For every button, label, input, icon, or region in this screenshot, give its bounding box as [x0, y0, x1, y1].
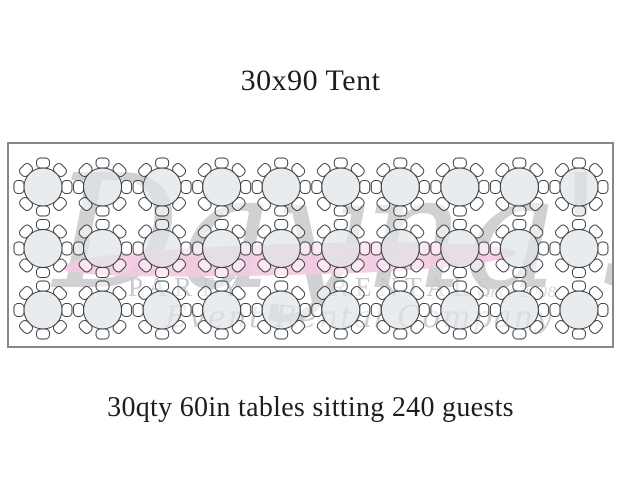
watermark-word-party: PARTY — [128, 272, 247, 303]
caption-text: 30qty 60in tables sitting 240 guests — [0, 392, 621, 424]
watermark-word-rentals: RENTALS — [330, 272, 498, 303]
page-title: 30x90 Tent — [0, 64, 621, 98]
tent-outline: Dayna's PARTY RENTALS since 2008 Event R… — [7, 142, 614, 348]
watermark-pink-brush — [64, 238, 517, 280]
seating-chart-page: 30x90 Tent Dayna's PARTY RENTALS since 2… — [0, 0, 621, 480]
watermark-tagline: Event Rental Company — [165, 300, 554, 335]
watermark-since: since 2008 — [478, 284, 557, 302]
watermark-script-logo: Dayna's — [53, 142, 614, 348]
